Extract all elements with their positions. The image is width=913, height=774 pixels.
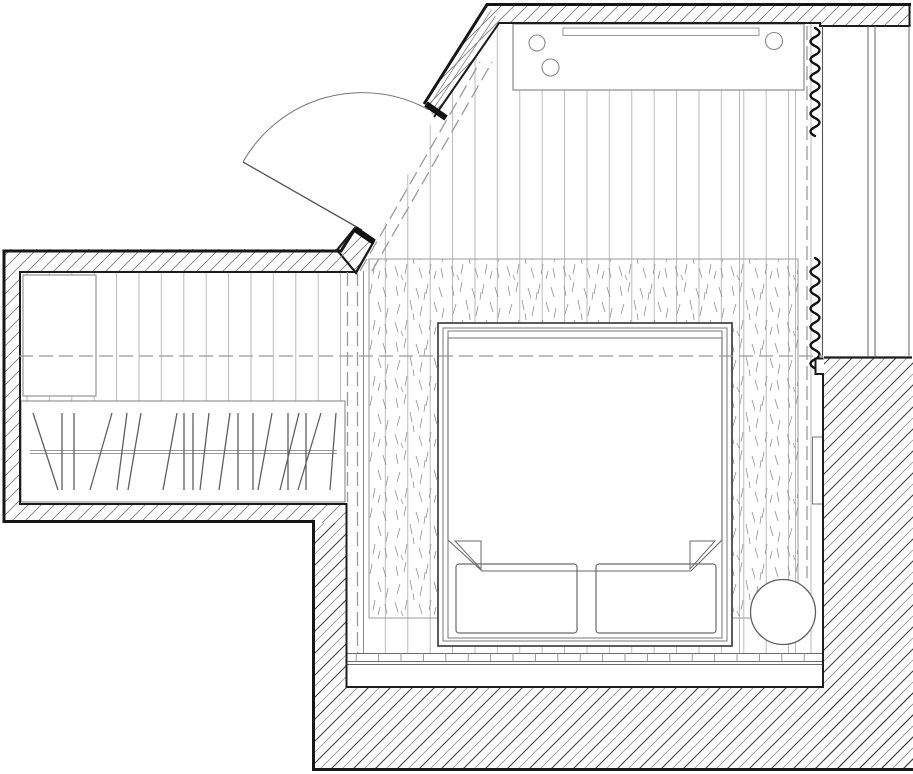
wall-right — [824, 357, 913, 771]
floor-plan-page — [0, 0, 913, 774]
pouf — [751, 580, 816, 645]
wall-lower-left — [313, 523, 347, 688]
console-tray — [563, 28, 759, 36]
floor-plan-svg — [0, 0, 913, 774]
duvet — [448, 338, 722, 571]
radiator — [813, 437, 823, 504]
floor-threshold-ticks — [356, 653, 804, 662]
console-object-1 — [529, 35, 545, 51]
console-object-2 — [542, 59, 559, 76]
wall-bottom — [313, 688, 913, 771]
console-object-3 — [766, 33, 783, 50]
wardrobe-zone — [21, 401, 345, 502]
closet-cabinet — [23, 275, 96, 396]
